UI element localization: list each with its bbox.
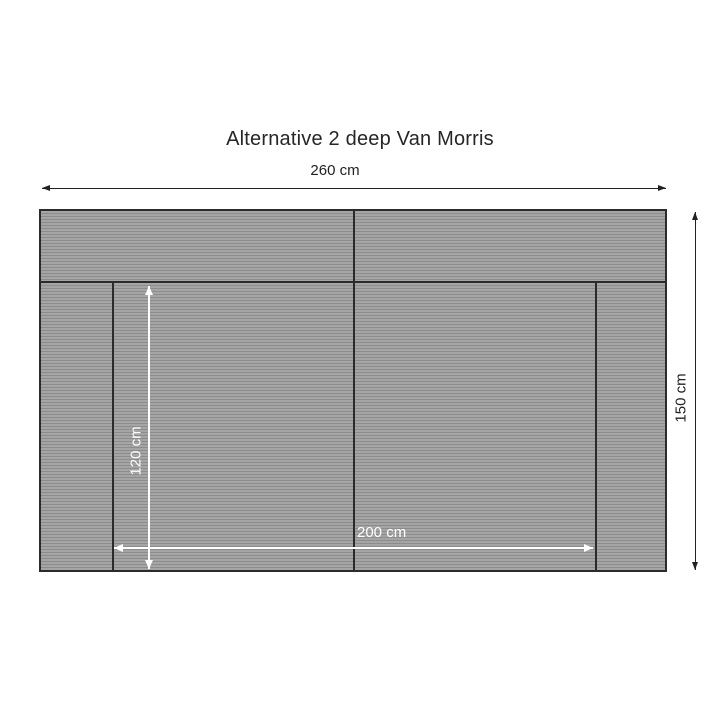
seat-width-label: 200 cm [357,524,406,541]
seat-depth-label: 120 cm [128,426,145,475]
left-armrest-seam-line [112,281,114,570]
seat-width-dimension-arrow [114,547,593,549]
page-title: Alternative 2 deep Van Morris [0,128,720,151]
overall-width-label: 260 cm [310,162,359,179]
center-seam-line [353,211,355,570]
overall-depth-label: 150 cm [673,373,690,422]
overall-depth-dimension-arrow [695,212,696,570]
overall-width-dimension-arrow [42,188,666,189]
right-armrest-seam-line [595,281,597,570]
sofa-dimension-diagram: Alternative 2 deep Van Morris 260 cm 150… [0,0,720,720]
sofa-outline [39,209,667,572]
seat-depth-dimension-arrow [148,286,150,569]
